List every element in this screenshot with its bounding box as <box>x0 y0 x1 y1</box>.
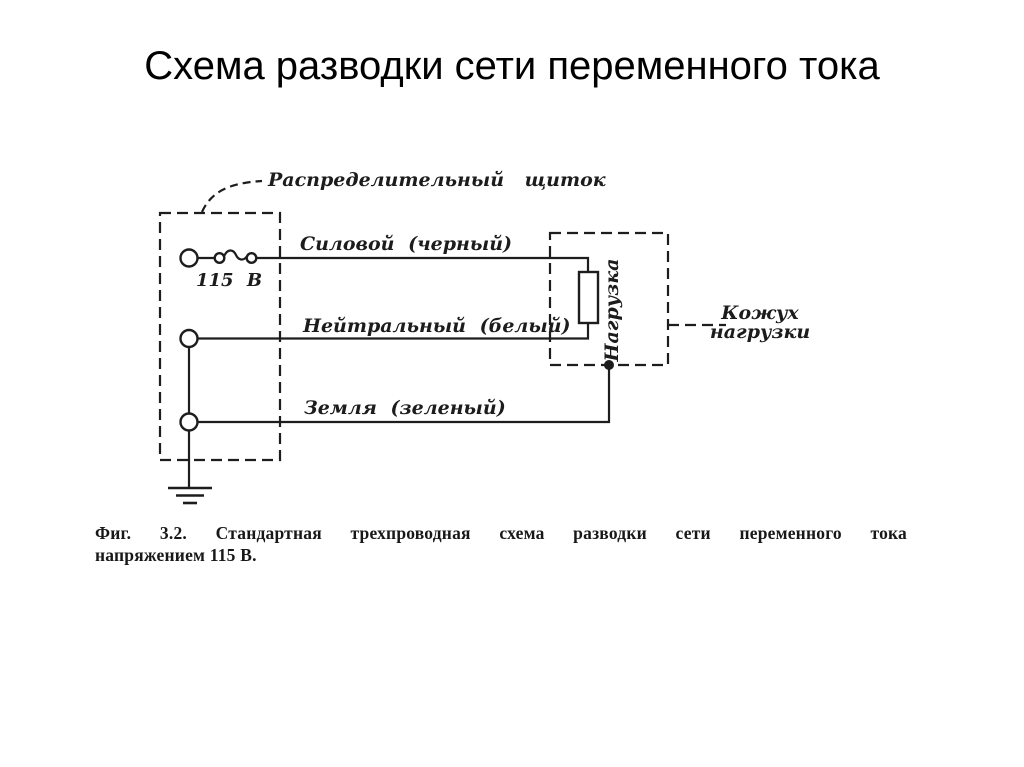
panel-leader-line <box>202 181 262 212</box>
switch-contact-left <box>215 253 225 263</box>
voltage-label: 115 В <box>196 270 262 291</box>
figure-caption: Фиг. 3.2. Стандартная трехпроводная схем… <box>95 523 907 566</box>
caption-line-2: напряжением 115 В. <box>95 545 907 567</box>
ground-symbol-icon <box>168 488 212 503</box>
neutral-wire-label: Нейтральный (белый) <box>302 315 570 337</box>
load-label: Нагрузка <box>601 259 623 363</box>
neutral-terminal <box>181 330 198 347</box>
panel-label: Распределительный щиток <box>267 169 606 191</box>
switch-terminal <box>181 250 198 267</box>
earth-terminal <box>181 414 198 431</box>
slide: Схема разводки сети переменного тока Рас… <box>0 0 1024 767</box>
switch-blade <box>224 250 247 259</box>
power-wire-label: Силовой (черный) <box>300 233 512 255</box>
housing-label-line2: нагрузки <box>710 321 810 343</box>
switch-contact-right <box>247 253 257 263</box>
power-wire <box>256 258 588 272</box>
load-resistor <box>579 272 598 323</box>
switch-icon <box>181 250 257 267</box>
circuit-diagram: Распределительный щиток 115 В Силовой (ч… <box>0 0 1024 767</box>
caption-line-1: Фиг. 3.2. Стандартная трехпроводная схем… <box>95 523 907 545</box>
ground-wire-label: Земля (зеленый) <box>304 397 506 419</box>
